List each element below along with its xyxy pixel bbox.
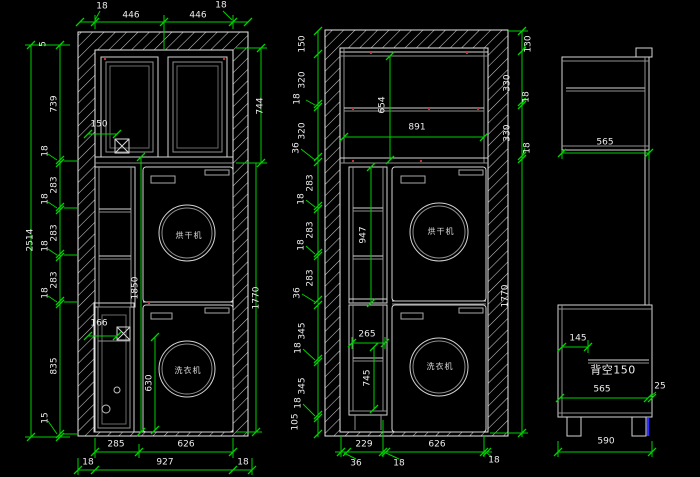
dim-label: 150 (299, 35, 308, 52)
dim-label-upper-depth: 565 (596, 139, 613, 148)
dim-label: 18 (488, 457, 499, 466)
dim-label-right-height: 1770 (253, 287, 262, 310)
dim-label: 18 (298, 193, 307, 204)
dim-label-inner-width: 891 (408, 124, 425, 133)
middle-elevation-wall-hatch (325, 30, 508, 436)
washer-label: 洗衣机 (427, 363, 454, 371)
dim-label: 229 (355, 441, 372, 450)
dim-label: 130 (525, 35, 534, 52)
dim-label-base-depth: 565 (593, 386, 610, 395)
dim-label-cabinet-height: 745 (364, 369, 373, 386)
dim-label: 18 (42, 240, 51, 251)
dim-label: 18 (237, 459, 248, 468)
cabinet-leg (567, 417, 581, 436)
dim-label: 18 (42, 287, 51, 298)
dim-label: 446 (122, 12, 139, 21)
dim-label: 18 (295, 397, 304, 408)
dim-label: 105 (292, 413, 301, 430)
side-section-linework (558, 48, 652, 436)
cabinet-leg (632, 417, 646, 436)
dim-label: 18 (393, 460, 404, 469)
dim-label: 18 (42, 145, 51, 156)
dim-label: 835 (51, 357, 60, 374)
dim-label: 18 (96, 3, 107, 12)
dim-label: 626 (177, 441, 194, 450)
dim-label: 36 (350, 460, 361, 469)
dim-label: 18 (524, 142, 533, 153)
dim-label: 285 (107, 441, 124, 450)
side-section-dimensions (554, 149, 656, 457)
dim-label: 927 (156, 459, 173, 468)
dim-label: 345 (299, 377, 308, 394)
dryer-label: 烘干机 (428, 228, 455, 236)
dim-label: 320 (299, 71, 308, 88)
dim-label: 283 (307, 269, 316, 286)
dim-label: 36 (294, 287, 303, 298)
dim-label: 739 (51, 95, 60, 112)
dim-label-shelf-height: 654 (379, 96, 388, 113)
dim-label: 446 (189, 12, 206, 21)
dim-label-floor-depth: 590 (597, 438, 614, 447)
back-clearance-note: 背空150 (590, 365, 636, 376)
dim-label: 15 (42, 412, 51, 423)
dim-label-washer-door: 630 (146, 374, 155, 391)
dim-label-door-filler: 166 (90, 320, 107, 329)
dim-label: 626 (428, 441, 445, 450)
dim-label: 283 (51, 176, 60, 193)
dim-label: 1770 (502, 285, 511, 308)
dim-label: 283 (51, 224, 60, 241)
dim-label: 345 (299, 322, 308, 339)
dim-label-upper-height: 744 (257, 97, 266, 114)
dim-label-inner-height: 1850 (132, 277, 141, 300)
dim-label: 283 (51, 271, 60, 288)
dim-label-overall-height: 2514 (27, 229, 36, 252)
dim-label: 320 (299, 122, 308, 139)
dryer-label: 烘干机 (176, 232, 203, 240)
dim-label: 18 (295, 342, 304, 353)
dim-label: 330 (504, 74, 513, 91)
dim-label-gap: 25 (654, 383, 665, 392)
dim-label: 18 (215, 2, 226, 11)
dim-label: 5 (40, 41, 49, 47)
cad-drawing-canvas: 18 446 446 18 2514 5 739 18 283 18 283 1… (0, 0, 700, 477)
dim-label: 18 (294, 93, 303, 104)
dim-label-column-height: 947 (360, 226, 369, 243)
dim-label: 18 (523, 91, 532, 102)
dim-label: 330 (504, 124, 513, 141)
dim-label-filler: 150 (90, 121, 107, 130)
washer-label: 洗衣机 (175, 367, 202, 375)
dim-label: 18 (42, 193, 51, 204)
dim-label: 283 (307, 221, 316, 238)
dim-label-leg-inset: 145 (569, 335, 586, 344)
dim-label: 36 (293, 142, 302, 153)
dim-label: 283 (307, 174, 316, 191)
cad-linework (0, 0, 700, 477)
dim-label-cabinet-width: 265 (358, 331, 375, 340)
dim-label: 18 (82, 459, 93, 468)
dim-label: 18 (298, 239, 307, 250)
